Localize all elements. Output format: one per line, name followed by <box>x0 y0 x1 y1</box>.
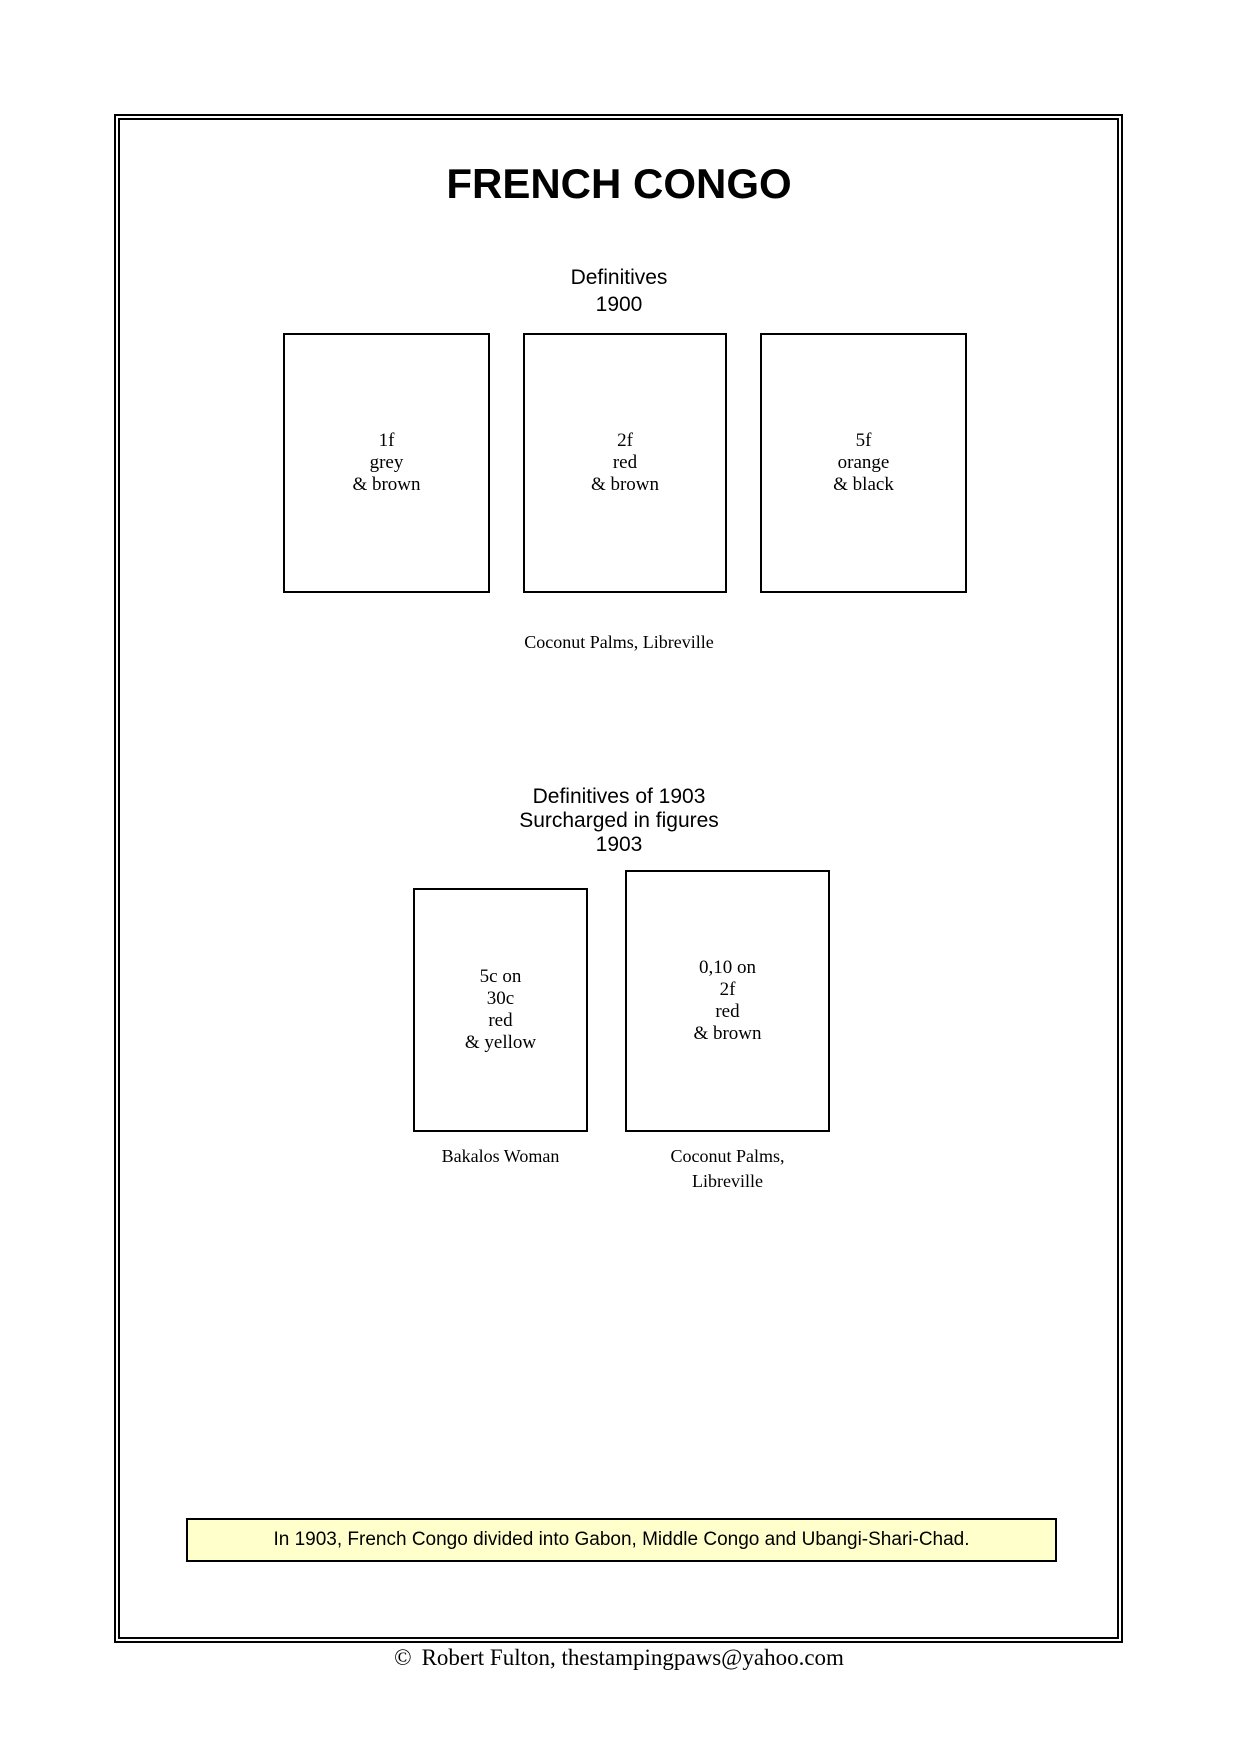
section-heading-definitives-1903: Definitives of 1903 Surcharged in figure… <box>115 785 1123 857</box>
stamp-color: & brown <box>591 474 659 496</box>
section-heading-line: Definitives of 1903 <box>115 785 1123 809</box>
history-note: In 1903, French Congo divided into Gabon… <box>186 1518 1057 1562</box>
caption-coconut-palms: Coconut Palms, Libreville <box>575 1144 880 1194</box>
stamp-color: red <box>488 1010 512 1032</box>
section-heading-definitives-1900: Definitives 1900 <box>115 264 1123 318</box>
page-footer: ©Robert Fulton, thestampingpaws@yahoo.co… <box>115 1643 1123 1673</box>
stamp-value: 2f <box>617 430 633 452</box>
footer-credit-text: Robert Fulton, thestampingpaws@yahoo.com <box>422 1645 844 1670</box>
stamp-color: grey <box>370 452 404 474</box>
history-note-text: In 1903, French Congo divided into Gabon… <box>273 1529 969 1551</box>
caption-line: Coconut Palms, <box>575 1144 880 1169</box>
stamp-color: red <box>715 1001 739 1023</box>
stamp-color: orange <box>838 452 890 474</box>
section-heading-line: 1900 <box>115 291 1123 318</box>
stamp-value: 30c <box>487 988 514 1010</box>
page-title: FRENCH CONGO <box>115 160 1123 208</box>
section-heading-line: Surcharged in figures <box>115 809 1123 833</box>
stamp-box-5f-orange-black: 5f orange & black <box>760 333 967 593</box>
stamp-color: & brown <box>693 1023 761 1045</box>
stamp-value: 1f <box>379 430 395 452</box>
album-page: FRENCH CONGO Definitives 1900 1f grey & … <box>0 0 1240 1754</box>
section-heading-line: Definitives <box>115 264 1123 291</box>
stamp-box-1f-grey-brown: 1f grey & brown <box>283 333 490 593</box>
stamp-value: 2f <box>720 979 736 1001</box>
stamp-surcharge: 5c on <box>480 966 522 988</box>
stamp-color: & brown <box>352 474 420 496</box>
stamp-value: 5f <box>856 430 872 452</box>
stamp-box-2f-red-brown: 2f red & brown <box>523 333 727 593</box>
section-heading-line: 1903 <box>115 833 1123 857</box>
stamp-surcharge: 0,10 on <box>699 957 756 979</box>
stamp-color: & black <box>833 474 894 496</box>
caption-line: Libreville <box>575 1169 880 1194</box>
caption-coconut-palms-libreville: Coconut Palms, Libreville <box>115 630 1123 655</box>
stamp-box-010-on-2f: 0,10 on 2f red & brown <box>625 870 830 1132</box>
stamp-box-5c-on-30c: 5c on 30c red & yellow <box>413 888 588 1132</box>
stamp-color: red <box>613 452 637 474</box>
stamp-color: & yellow <box>465 1032 536 1054</box>
copyright-icon: © <box>394 1645 411 1670</box>
